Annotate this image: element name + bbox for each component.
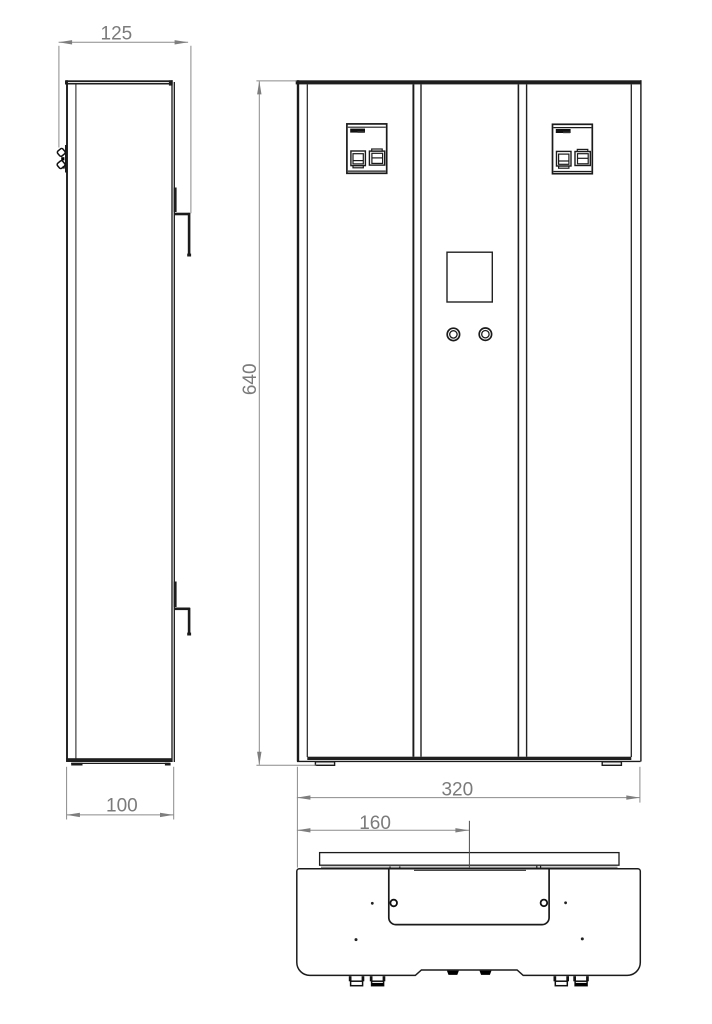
- svg-text:640: 640: [240, 363, 261, 395]
- svg-text:320: 320: [441, 780, 473, 801]
- svg-text:160: 160: [359, 813, 391, 834]
- svg-text:100: 100: [106, 795, 138, 816]
- svg-text:125: 125: [101, 23, 133, 44]
